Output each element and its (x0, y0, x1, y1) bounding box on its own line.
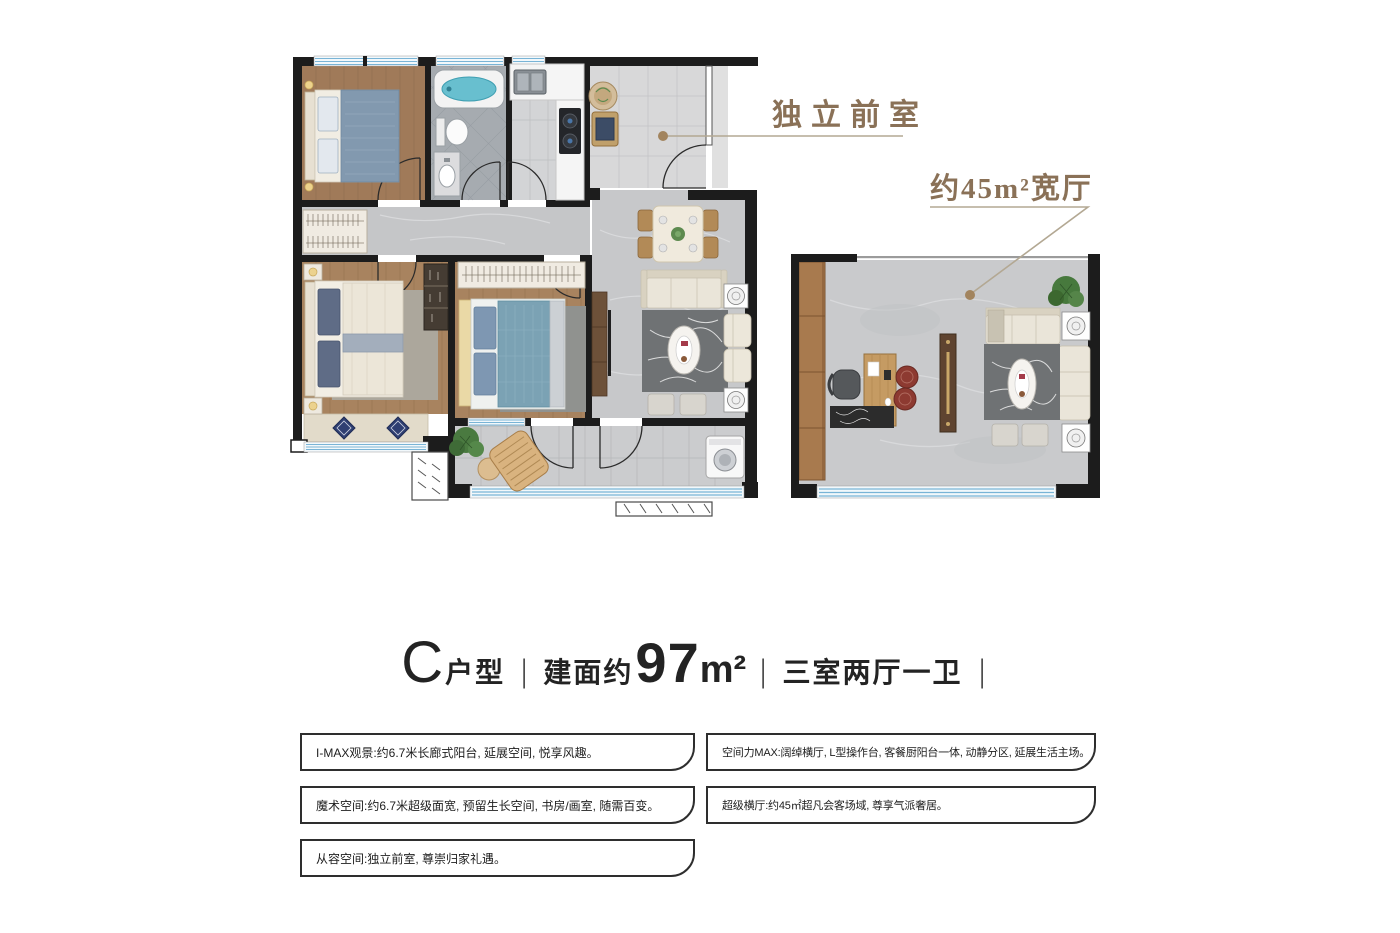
floorplan-page: 独立前室 约45m²宽厅 C 户型 | 建面约 97 m² | 三室两厅一卫 |… (0, 0, 1400, 933)
hall-area-label: 约45m²宽厅 (930, 165, 1093, 207)
feature-box-magic-space: 魔术空间:约6.7米超级面宽, 预留生长空间, 书房/画室, 随需百变。 (300, 786, 695, 824)
entry-bench (592, 112, 618, 146)
coffee-table (668, 326, 700, 374)
ac-platform-bottom (616, 502, 712, 516)
ac-platform-left (412, 452, 448, 500)
hall-desk-mat (830, 406, 894, 428)
area-unit: m² (700, 649, 746, 692)
hall-open-edge (857, 256, 1088, 258)
entry-decor-plate (589, 82, 617, 110)
front-room-dot (658, 131, 668, 141)
hall-closet (303, 210, 367, 253)
feature-text: I-MAX观景:约6.7米长廊式阳台, 延展空间, 悦享风趣。 (316, 744, 599, 761)
stove (559, 108, 581, 154)
toilet (436, 118, 468, 146)
room-layout-text: 三室两厅一卫 (782, 651, 962, 691)
bedroom-2-wardrobe (458, 262, 585, 288)
feature-box-super-hall: 超级横厅:约45㎡超凡会客场域, 尊享气派奢居。 (706, 786, 1096, 824)
main-floor-plan (291, 56, 758, 516)
title-separator: | (979, 653, 984, 690)
hall-detail-plan (791, 254, 1100, 498)
feature-text: 超级横厅:约45㎡超凡会客场域, 尊享气派奢居。 (722, 797, 948, 813)
unit-type-letter: C (401, 634, 443, 692)
hall-area-dot (965, 290, 975, 300)
feature-text: 从容空间:独立前室, 尊崇归家礼遇。 (316, 850, 506, 867)
title-separator: | (522, 653, 527, 690)
feature-box-space-max: 空间力MAX:阔绰横厅, L型操作台, 客餐厨阳台一体, 动静分区, 延展生活主… (706, 733, 1096, 771)
bed-2 (459, 299, 586, 412)
media-console (940, 334, 956, 432)
master-shelf-unit (424, 264, 448, 330)
hall-cabinet (799, 262, 825, 480)
feature-box-imax-view: I-MAX观景:约6.7米长廊式阳台, 延展空间, 悦享风趣。 (300, 733, 695, 771)
floor-plan-canvas (0, 0, 1400, 933)
unit-title: C 户型 | 建面约 97 m² | 三室两厅一卫 | (0, 634, 1400, 710)
title-separator: | (761, 653, 766, 690)
kitchen-sink (514, 70, 546, 94)
hall-balcony-window (817, 486, 1056, 498)
hall-coffee-table (1008, 359, 1036, 409)
feature-text: 魔术空间:约6.7米超级面宽, 预留生长空间, 书房/画室, 随需百变。 (316, 797, 659, 814)
unit-type-suffix: 户型 (445, 651, 505, 691)
feature-text: 空间力MAX:阔绰横厅, L型操作台, 客餐厨阳台一体, 动静分区, 延展生活主… (722, 744, 1090, 760)
vanity-sink (434, 152, 460, 196)
washing-machine (706, 436, 744, 478)
front-room-label: 独立前室 (772, 90, 928, 134)
feature-box-calm-space: 从容空间:独立前室, 尊崇归家礼遇。 (300, 839, 695, 877)
area-value: 97 (635, 635, 699, 691)
bed-1 (305, 81, 399, 191)
entry-glazed-wall (706, 66, 712, 145)
area-prefix: 建面约 (543, 651, 633, 691)
sofa (641, 270, 727, 308)
bathtub (434, 70, 504, 108)
